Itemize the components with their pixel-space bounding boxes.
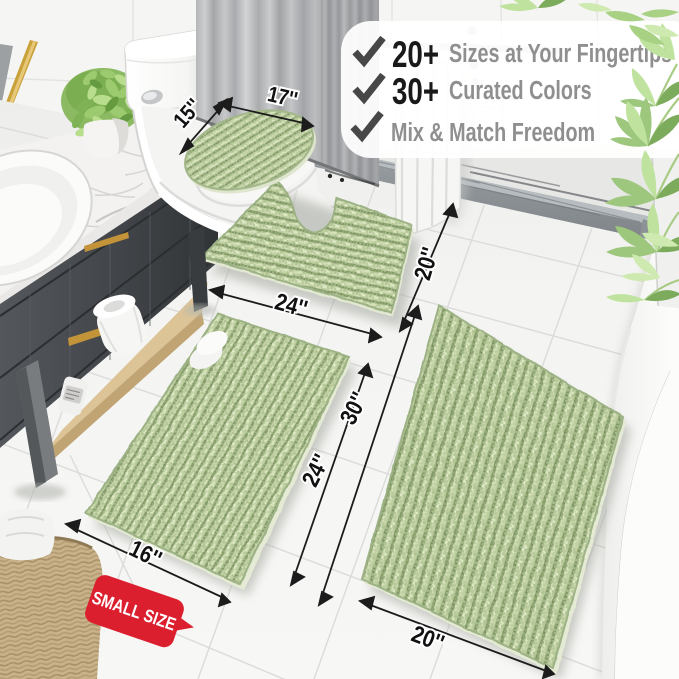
svg-text:Sizes at Your Fingertips: Sizes at Your Fingertips [449, 38, 672, 67]
svg-text:20+: 20+ [392, 33, 439, 75]
svg-text:Curated Colors: Curated Colors [449, 75, 592, 104]
svg-text:30+: 30+ [392, 70, 439, 112]
svg-text:Mix & Match Freedom: Mix & Match Freedom [391, 117, 595, 146]
